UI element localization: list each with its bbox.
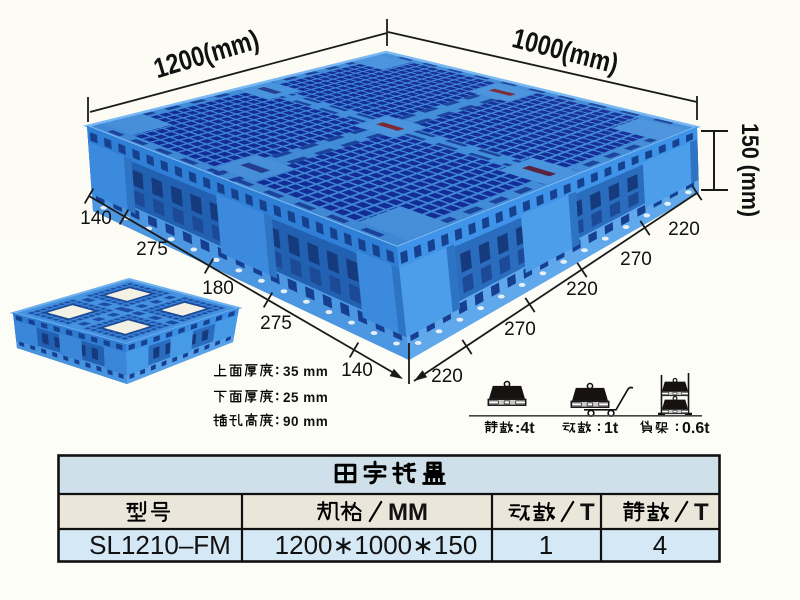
svg-text:1: 1	[539, 530, 553, 560]
svg-text:270: 270	[504, 319, 536, 340]
svg-text:140: 140	[80, 208, 112, 229]
svg-text:275: 275	[136, 239, 168, 260]
svg-text:150 (mm): 150 (mm)	[736, 123, 763, 217]
svg-text:220: 220	[566, 279, 598, 300]
svg-text:4: 4	[653, 530, 667, 560]
svg-text::4t: :4t	[515, 420, 535, 437]
svg-text:180: 180	[202, 278, 234, 299]
svg-text:270: 270	[620, 249, 652, 270]
svg-text:MM: MM	[388, 499, 428, 526]
svg-text:220: 220	[668, 219, 700, 240]
svg-text:275: 275	[260, 313, 292, 334]
svg-text:0.6t: 0.6t	[682, 420, 710, 437]
svg-text:1200∗1000∗150: 1200∗1000∗150	[275, 530, 478, 560]
svg-text:T: T	[580, 499, 595, 526]
svg-text:35 mm: 35 mm	[283, 364, 328, 379]
svg-text:140: 140	[341, 360, 373, 381]
svg-text:1t: 1t	[604, 420, 619, 437]
svg-text:90 mm: 90 mm	[283, 414, 328, 429]
svg-text:220: 220	[431, 366, 463, 387]
svg-text:T: T	[694, 499, 709, 526]
svg-text:SL1210–FM: SL1210–FM	[89, 530, 231, 560]
svg-text:25 mm: 25 mm	[283, 390, 328, 405]
